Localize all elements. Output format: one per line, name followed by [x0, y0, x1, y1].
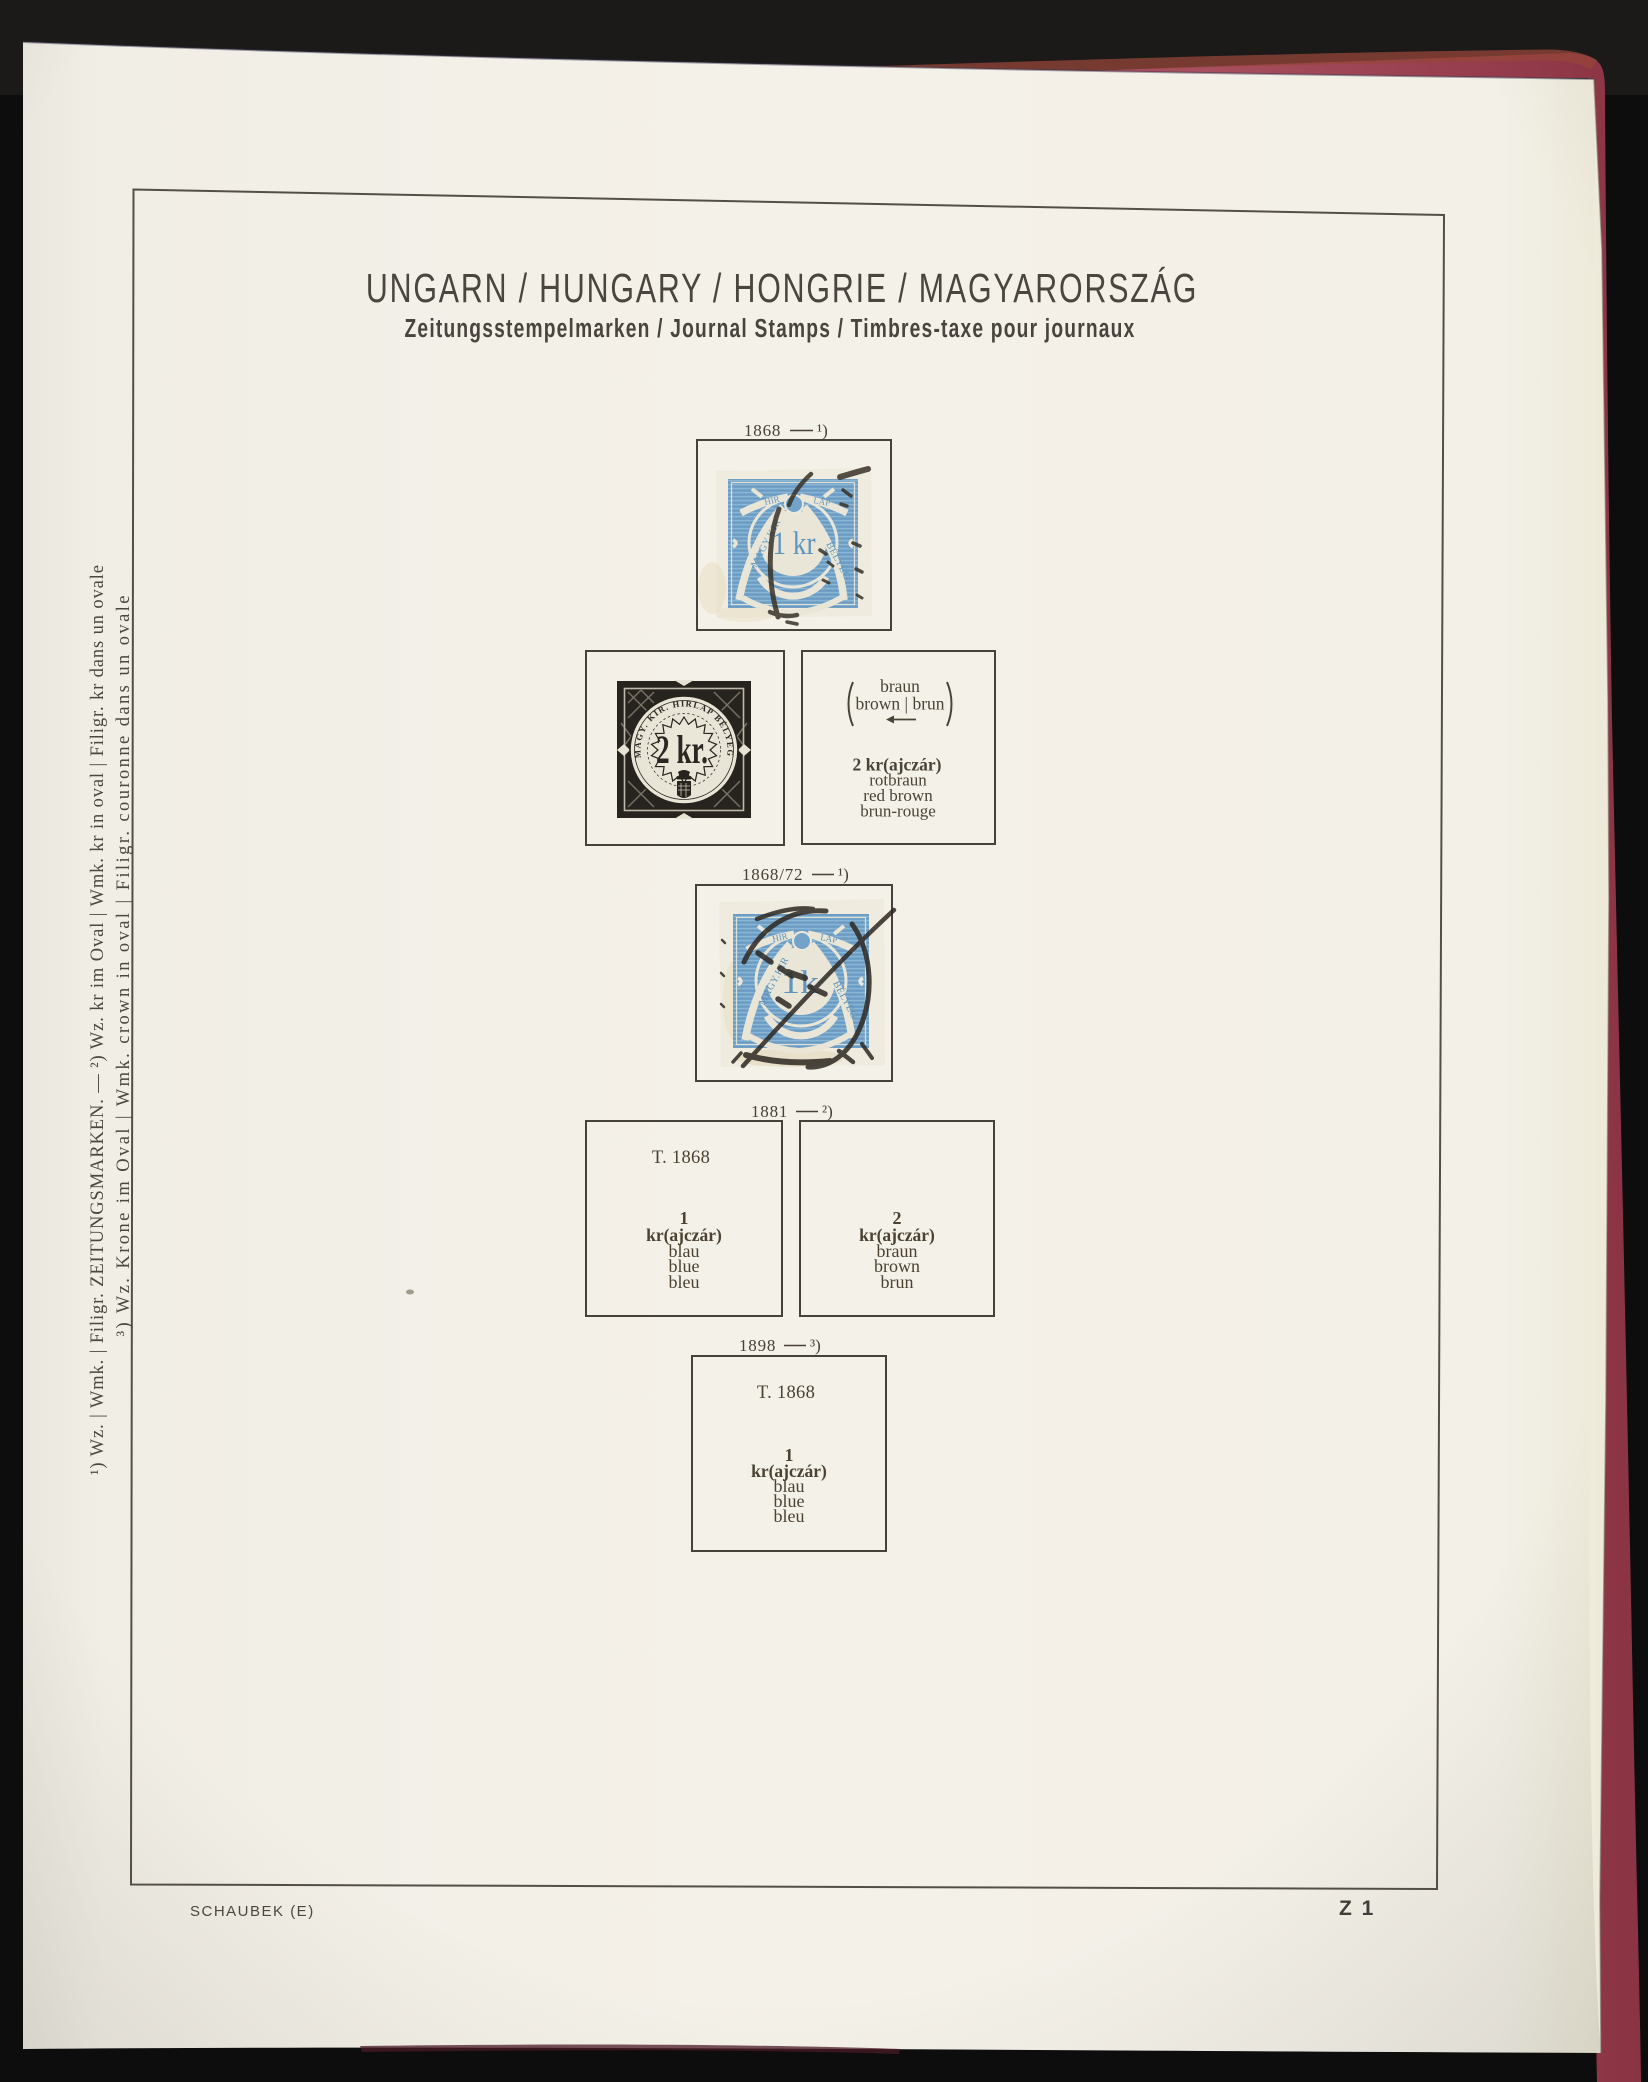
- svg-text:¹): ¹): [817, 421, 828, 440]
- svg-text:1881: 1881: [751, 1102, 788, 1121]
- svg-text:Zeitungsstempelmarken / Journa: Zeitungsstempelmarken / Journal Stamps /…: [405, 314, 1136, 342]
- svg-text:SCHAUBEK (E): SCHAUBEK (E): [190, 1903, 315, 1920]
- svg-text:³): ³): [810, 1336, 821, 1355]
- svg-text:brun: brun: [881, 1272, 914, 1292]
- svg-text:UNGARN / HUNGARY / HONGRIE / M: UNGARN / HUNGARY / HONGRIE / MAGYARORSZÁ…: [366, 264, 1198, 311]
- svg-text:³) Wz. Krone im Oval | Wmk. cr: ³) Wz. Krone im Oval | Wmk. crown in ova…: [114, 595, 134, 1336]
- svg-text:Z 1: Z 1: [1339, 1897, 1375, 1920]
- svg-text:bleu: bleu: [774, 1506, 805, 1526]
- svg-text:¹): ¹): [838, 865, 849, 884]
- svg-text:bleu: bleu: [669, 1272, 700, 1292]
- svg-text:brown | brun: brown | brun: [855, 694, 944, 714]
- svg-text:1868: 1868: [744, 421, 781, 440]
- svg-text:¹) Wz. | Wmk. | Filigr. ZEITUN: ¹) Wz. | Wmk. | Filigr. ZEITUNGSMARKEN. …: [88, 565, 108, 1475]
- svg-text:1898: 1898: [739, 1336, 776, 1355]
- svg-text:2 kr.: 2 kr.: [656, 727, 708, 772]
- svg-text:1868/72: 1868/72: [742, 865, 803, 884]
- svg-text:T. 1868: T. 1868: [757, 1383, 815, 1403]
- svg-text:T. 1868: T. 1868: [652, 1148, 710, 1168]
- svg-text:1 kr: 1 kr: [773, 526, 816, 562]
- svg-text:brun-rouge: brun-rouge: [860, 802, 936, 821]
- svg-text:²): ²): [822, 1102, 833, 1121]
